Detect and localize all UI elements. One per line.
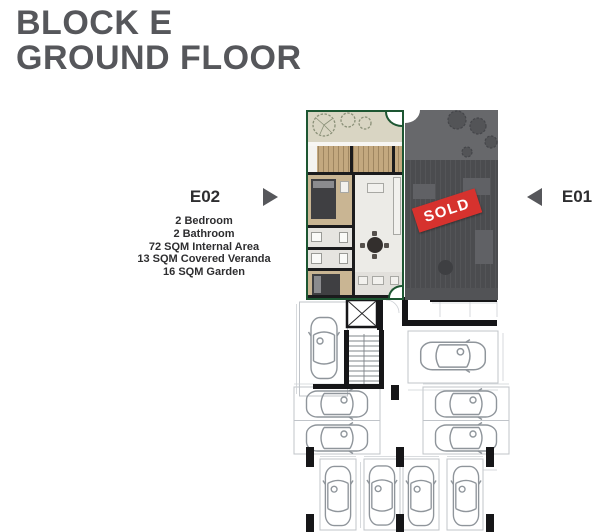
e01-table (438, 260, 453, 275)
unit-e01-plan[interactable]: SOLD (405, 110, 498, 300)
e01-garden (405, 110, 498, 160)
chair (360, 243, 365, 248)
floorplan-page: BLOCK E GROUND FLOOR E02 2 Bedroom 2 Bat… (0, 0, 601, 532)
toilet (339, 253, 348, 264)
sink-counter (372, 276, 384, 285)
pillow (313, 181, 334, 188)
chair (384, 243, 389, 248)
elevator-icon (347, 300, 377, 327)
e02-deck-gap (308, 146, 317, 174)
chair (372, 231, 377, 236)
e02-covered-veranda (308, 146, 402, 174)
e02-bathroom-2 (308, 250, 352, 268)
deck-post (392, 146, 395, 174)
tall-cabinet (393, 177, 401, 235)
stove (358, 276, 368, 285)
wardrobe (340, 181, 349, 193)
e02-bedroom-1 (308, 175, 352, 225)
tree-icons (405, 110, 498, 160)
stairs (344, 330, 384, 389)
pillow (314, 276, 321, 293)
car-icons (307, 318, 497, 526)
sink (311, 232, 322, 242)
dining-table (367, 237, 383, 253)
e01-furniture (413, 184, 435, 199)
e02-bedroom-2 (308, 271, 352, 298)
e01-bottom-strip (405, 288, 498, 300)
car-icon (309, 318, 340, 379)
toilet (339, 232, 348, 243)
e01-sofa (475, 230, 493, 264)
parking-plan (0, 0, 601, 532)
unit-e02-plan[interactable] (306, 110, 404, 300)
shower (311, 253, 322, 264)
e02-bathroom-1 (308, 228, 352, 247)
bed (312, 274, 340, 295)
chair (372, 254, 377, 259)
kitchen-island (367, 183, 384, 193)
deck-post (350, 146, 353, 174)
e02-living-area (355, 175, 402, 298)
fridge (390, 276, 399, 285)
bed (311, 179, 336, 219)
